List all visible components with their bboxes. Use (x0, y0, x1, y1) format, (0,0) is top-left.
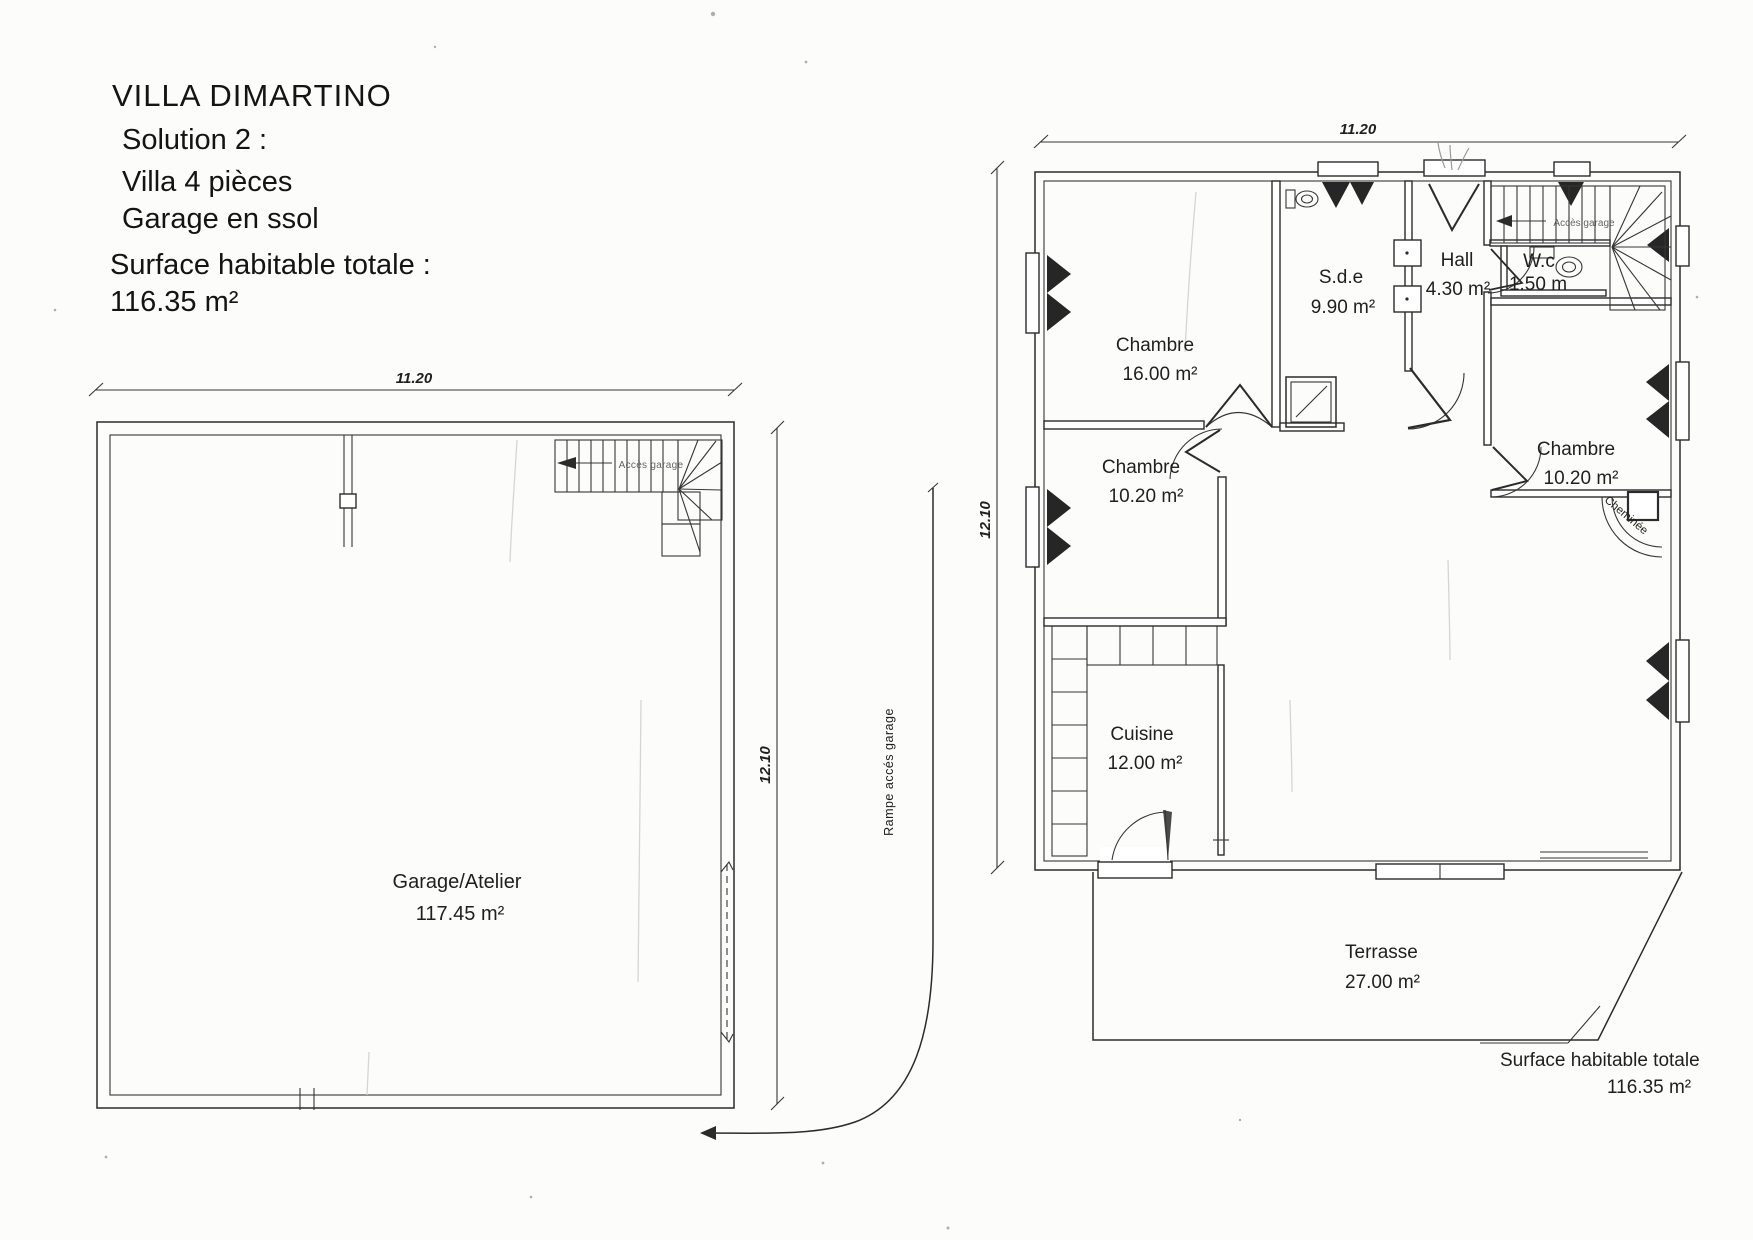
bedroom3-area: 10.20 m² (1544, 468, 1619, 489)
window-bottom-right (1540, 852, 1648, 858)
window-right-sejour (1646, 640, 1689, 722)
basement-height-dimension: 12.10 (757, 421, 784, 1110)
bedroom2-area: 10.20 m² (1109, 486, 1184, 507)
door-bedroom1 (1206, 385, 1272, 427)
hall-name: Hall (1441, 250, 1474, 271)
garage-room-area: 117.45 m² (416, 903, 505, 925)
window-left-bedroom2 (1026, 487, 1071, 567)
cuisine-area: 12.00 m² (1108, 753, 1183, 774)
access-ramp: Rampe accés garage (700, 483, 938, 1140)
scanned-floor-plan-page: VILLA DIMARTINO Solution 2 : Villa 4 piè… (0, 0, 1753, 1240)
window-left-bedroom1 (1026, 253, 1071, 333)
garage-door-opening (721, 862, 733, 1042)
terrasse-name: Terrasse (1345, 942, 1418, 963)
basement-plan: 11.20 12.10 (89, 370, 938, 1140)
bedroom1-name: Chambre (1116, 335, 1194, 356)
toilet-icon-sde (1286, 190, 1318, 208)
ramp-label: Rampe accés garage (882, 708, 896, 836)
window-top-sde (1318, 162, 1378, 208)
window-bottom-sejour (1376, 864, 1504, 879)
floor-stairs-label: Accès garage (1553, 218, 1615, 229)
floor-height-value: 12.10 (977, 501, 994, 539)
basement-width-value: 11.20 (396, 370, 433, 387)
terrasse-area: 27.00 m² (1345, 972, 1420, 993)
scan-streaks (367, 440, 641, 1095)
window-top-stairs (1554, 162, 1590, 206)
total-surface-label: Surface habitable totale (1500, 1050, 1700, 1071)
door-hall-corridor (1408, 368, 1464, 429)
shower-icon (1286, 377, 1336, 427)
basement-stairs: Accès garage (555, 440, 722, 556)
total-surface-value: 116.35 m² (1607, 1077, 1691, 1098)
garage-room-label: Garage/Atelier 117.45 m² (393, 871, 522, 925)
bedroom3-name: Chambre (1537, 439, 1615, 460)
stairs-direction-arrow (557, 457, 612, 469)
door-entrance (1424, 143, 1485, 230)
bottom-wall-posts (300, 1088, 314, 1110)
window-right-stairs (1647, 226, 1689, 266)
bedroom2-name: Chambre (1102, 457, 1180, 478)
wc-area: 1.50 m (1509, 274, 1567, 295)
bedroom1-area: 16.00 m² (1123, 364, 1198, 385)
total-surface-annotation: Surface habitable totale 116.35 m² (1480, 1006, 1700, 1098)
basement-stairs-label: Accès garage (619, 460, 684, 471)
sde-name: S.d.e (1319, 267, 1363, 288)
window-right-bedroom3 (1646, 362, 1689, 440)
pillar-detail (340, 435, 356, 547)
basement-height-value: 12.10 (757, 746, 774, 784)
floor-width-value: 11.20 (1340, 121, 1377, 138)
fireplace: Cheminée (1602, 492, 1662, 557)
basement-width-dimension: 11.20 (89, 370, 742, 396)
floor-height-dimension: 12.10 (977, 161, 1004, 874)
basement-walls (97, 422, 734, 1108)
terrasse: Terrasse 27.00 m² (1093, 872, 1682, 1040)
sde-area: 9.90 m² (1311, 297, 1375, 318)
garage-room-name: Garage/Atelier (393, 871, 522, 893)
door-cuisine-exterior (1098, 810, 1172, 878)
main-floor-plan: 11.20 12.10 (977, 121, 1700, 1098)
floor-plans-drawing: 11.20 12.10 (0, 0, 1753, 1240)
scan-specks (54, 12, 1699, 1230)
cuisine-name: Cuisine (1110, 724, 1173, 745)
floor-width-dimension: 11.20 (1034, 121, 1686, 148)
wc-name: W.c (1523, 251, 1555, 272)
hall-area: 4.30 m² (1426, 279, 1490, 300)
room-labels: Chambre 16.00 m² S.d.e 9.90 m² Hall 4.30… (1102, 250, 1619, 774)
